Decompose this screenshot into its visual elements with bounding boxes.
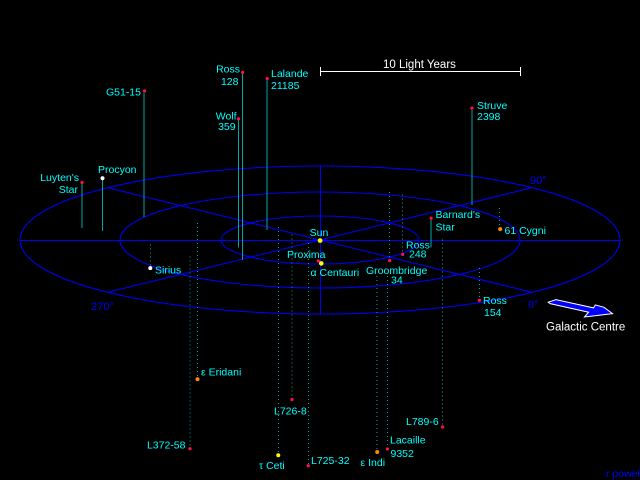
svg-text:90°: 90° [530, 175, 547, 187]
svg-text:α Centauri: α Centauri [311, 267, 360, 279]
svg-text:Procyon: Procyon [98, 164, 137, 176]
svg-text:Star: Star [436, 222, 456, 234]
svg-text:10 Light Years: 10 Light Years [383, 59, 456, 71]
svg-text:Star: Star [59, 184, 79, 196]
svg-text:21185: 21185 [271, 80, 300, 92]
svg-text:359: 359 [218, 121, 236, 133]
svg-text:G51-15: G51-15 [106, 87, 141, 99]
svg-text:61 Cygni: 61 Cygni [505, 225, 546, 237]
svg-text:L372-58: L372-58 [147, 440, 186, 452]
svg-text:ε Eridani: ε Eridani [201, 367, 241, 379]
svg-text:r powell: r powell [606, 468, 640, 480]
svg-text:Sun: Sun [310, 227, 329, 239]
svg-text:L725-32: L725-32 [311, 455, 350, 467]
svg-text:2398: 2398 [477, 111, 501, 123]
svg-text:Lalande: Lalande [271, 68, 309, 80]
svg-text:Ross: Ross [216, 64, 240, 76]
svg-text:34: 34 [391, 275, 403, 287]
svg-text:L726-8: L726-8 [274, 406, 307, 418]
svg-text:Ross: Ross [483, 295, 507, 307]
svg-text:Sirius: Sirius [155, 265, 181, 277]
svg-text:270°: 270° [91, 301, 114, 313]
svg-text:L789-6: L789-6 [406, 416, 439, 428]
svg-text:154: 154 [484, 307, 502, 319]
svg-text:Proxima: Proxima [287, 249, 326, 261]
svg-text:Lacaille: Lacaille [390, 434, 426, 446]
svg-text:248: 248 [409, 249, 427, 261]
svg-text:Galactic Centre: Galactic Centre [546, 322, 625, 334]
svg-text:128: 128 [221, 76, 239, 88]
svg-text:Luyten's: Luyten's [40, 172, 79, 184]
svg-text:9352: 9352 [391, 448, 415, 460]
svg-text:0°: 0° [528, 299, 539, 311]
svg-text:ε Indi: ε Indi [361, 457, 386, 469]
svg-text:Barnard's: Barnard's [436, 209, 481, 221]
svg-text:τ Ceti: τ Ceti [259, 460, 285, 472]
